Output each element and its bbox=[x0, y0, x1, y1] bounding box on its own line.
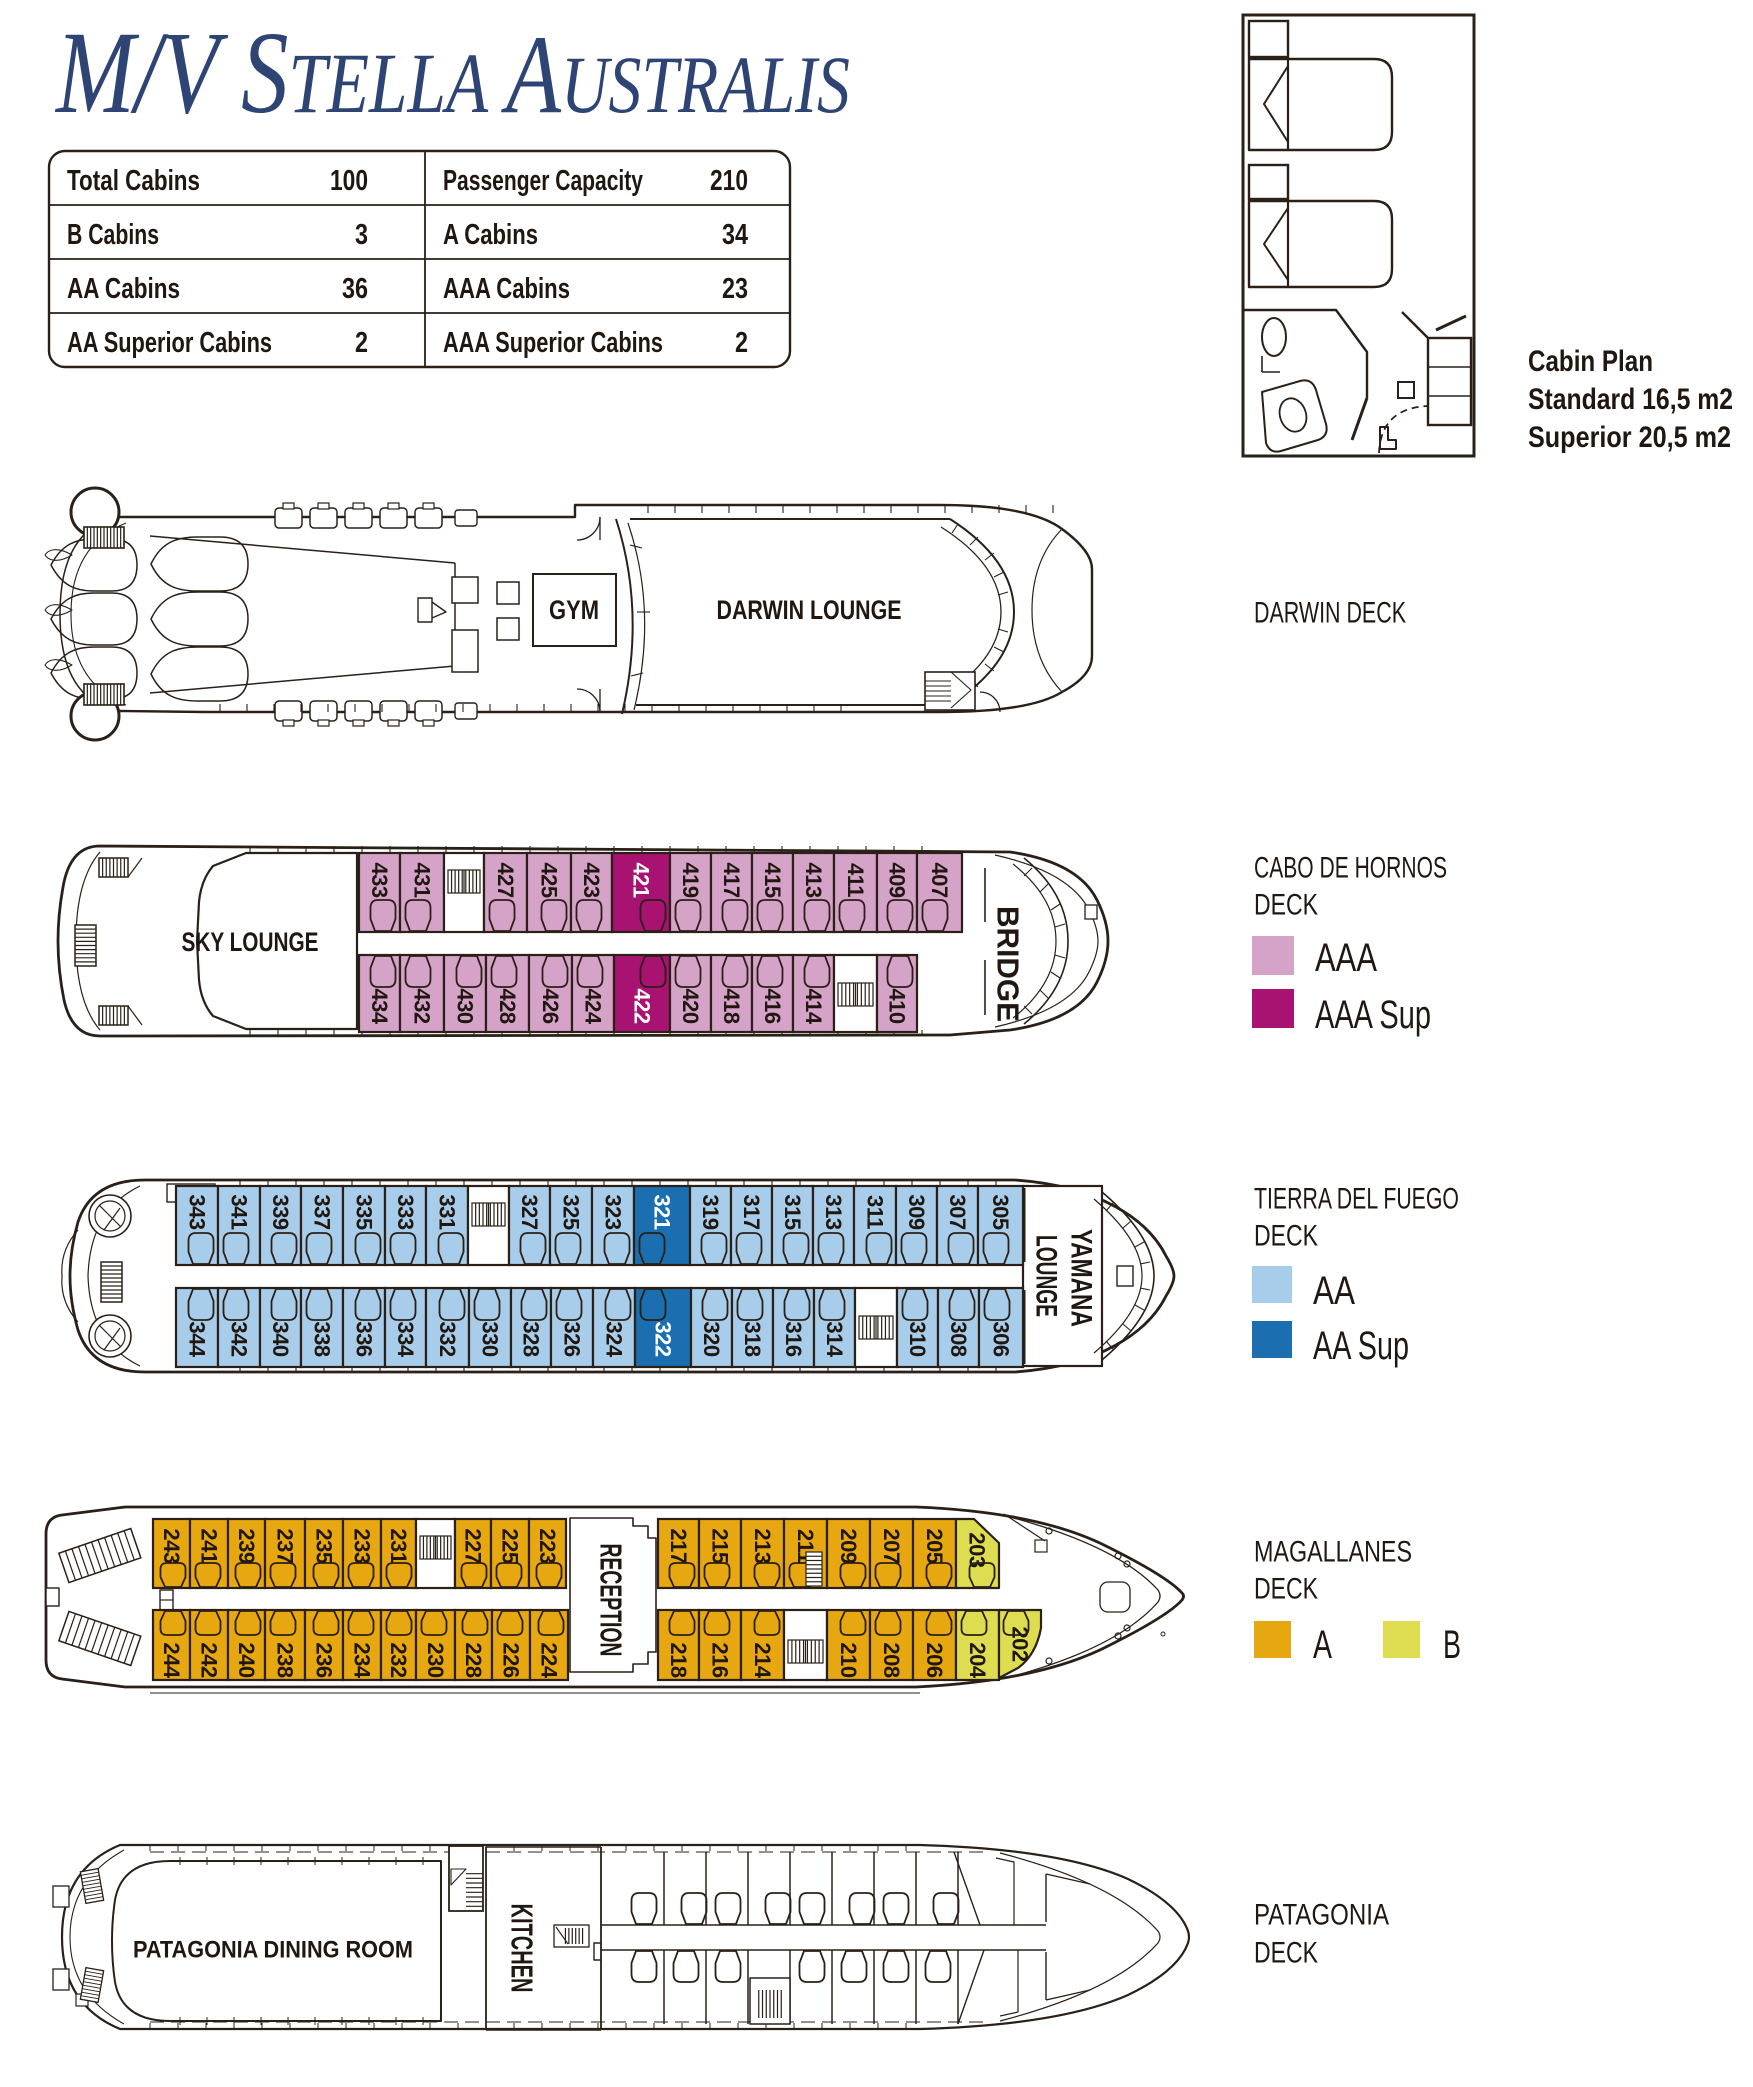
svg-text:AAA Superior Cabins: AAA Superior Cabins bbox=[443, 327, 663, 359]
svg-text:YAMANA: YAMANA bbox=[1065, 1229, 1098, 1327]
svg-text:431: 431 bbox=[410, 862, 435, 897]
svg-text:343: 343 bbox=[185, 1194, 210, 1229]
svg-text:Passenger Capacity: Passenger Capacity bbox=[443, 165, 643, 197]
svg-text:415: 415 bbox=[760, 862, 785, 897]
svg-text:36: 36 bbox=[342, 273, 368, 305]
svg-text:205: 205 bbox=[922, 1528, 947, 1563]
svg-text:DECK: DECK bbox=[1254, 1220, 1318, 1253]
svg-text:341: 341 bbox=[227, 1194, 252, 1229]
svg-text:AA Cabins: AA Cabins bbox=[67, 273, 180, 305]
svg-text:244: 244 bbox=[159, 1642, 184, 1678]
svg-text:PATAGONIA DINING ROOM: PATAGONIA DINING ROOM bbox=[133, 1937, 413, 1964]
svg-text:407: 407 bbox=[927, 862, 952, 897]
svg-text:B Cabins: B Cabins bbox=[67, 219, 159, 251]
svg-text:CABO DE HORNOS: CABO DE HORNOS bbox=[1254, 852, 1447, 885]
svg-text:240: 240 bbox=[234, 1642, 259, 1677]
svg-text:235: 235 bbox=[312, 1528, 337, 1563]
svg-text:319: 319 bbox=[698, 1194, 723, 1229]
svg-text:334: 334 bbox=[393, 1321, 418, 1357]
svg-text:210: 210 bbox=[836, 1642, 861, 1677]
svg-text:427: 427 bbox=[493, 862, 518, 897]
svg-text:236: 236 bbox=[312, 1642, 337, 1677]
svg-text:414: 414 bbox=[801, 988, 826, 1024]
svg-text:KITCHEN: KITCHEN bbox=[505, 1904, 540, 1993]
svg-text:226: 226 bbox=[499, 1642, 524, 1677]
svg-text:217: 217 bbox=[666, 1528, 691, 1563]
svg-text:425: 425 bbox=[537, 862, 562, 897]
svg-text:Superior 20,5 m2: Superior 20,5 m2 bbox=[1528, 421, 1731, 454]
svg-text:A Cabins: A Cabins bbox=[443, 219, 538, 251]
svg-text:422: 422 bbox=[630, 988, 655, 1023]
svg-text:AAA: AAA bbox=[1315, 936, 1377, 980]
svg-text:DARWIN LOUNGE: DARWIN LOUNGE bbox=[717, 595, 902, 625]
svg-text:234: 234 bbox=[350, 1642, 375, 1678]
svg-text:413: 413 bbox=[801, 862, 826, 897]
svg-text:B: B bbox=[1443, 1623, 1461, 1667]
svg-text:224: 224 bbox=[537, 1642, 562, 1678]
svg-text:AAA Sup: AAA Sup bbox=[1315, 993, 1431, 1037]
svg-text:328: 328 bbox=[519, 1321, 544, 1356]
svg-text:322: 322 bbox=[651, 1321, 676, 1356]
svg-text:TIERRA DEL FUEGO: TIERRA DEL FUEGO bbox=[1254, 1183, 1459, 1216]
svg-text:DECK: DECK bbox=[1254, 1573, 1318, 1606]
svg-text:230: 230 bbox=[423, 1642, 448, 1677]
svg-text:314: 314 bbox=[822, 1321, 847, 1357]
svg-text:218: 218 bbox=[666, 1642, 691, 1677]
svg-text:213: 213 bbox=[750, 1528, 775, 1563]
svg-text:333: 333 bbox=[393, 1194, 418, 1229]
svg-text:223: 223 bbox=[535, 1528, 560, 1563]
svg-text:307: 307 bbox=[945, 1194, 970, 1229]
svg-text:2: 2 bbox=[355, 327, 368, 359]
svg-text:432: 432 bbox=[410, 988, 435, 1023]
svg-text:409: 409 bbox=[885, 862, 910, 897]
svg-text:313: 313 bbox=[821, 1194, 846, 1229]
svg-text:433: 433 bbox=[367, 862, 392, 897]
svg-text:428: 428 bbox=[495, 988, 520, 1023]
svg-text:309: 309 bbox=[904, 1194, 929, 1229]
svg-text:327: 327 bbox=[517, 1194, 542, 1229]
svg-text:207: 207 bbox=[879, 1528, 904, 1563]
svg-text:323: 323 bbox=[601, 1194, 626, 1229]
svg-text:308: 308 bbox=[946, 1321, 971, 1356]
svg-text:340: 340 bbox=[268, 1321, 293, 1356]
svg-text:AAA Cabins: AAA Cabins bbox=[443, 273, 570, 305]
svg-text:215: 215 bbox=[708, 1528, 733, 1563]
svg-text:421: 421 bbox=[629, 862, 654, 897]
svg-text:204: 204 bbox=[965, 1642, 990, 1678]
svg-text:419: 419 bbox=[678, 862, 703, 897]
svg-text:216: 216 bbox=[708, 1642, 733, 1677]
svg-text:SKY LOUNGE: SKY LOUNGE bbox=[182, 927, 319, 957]
svg-text:332: 332 bbox=[435, 1321, 460, 1356]
svg-text:231: 231 bbox=[386, 1528, 411, 1563]
svg-text:RECEPTION: RECEPTION bbox=[594, 1544, 629, 1657]
svg-text:331: 331 bbox=[435, 1194, 460, 1229]
svg-text:426: 426 bbox=[538, 988, 563, 1023]
svg-text:GYM: GYM bbox=[549, 595, 599, 625]
svg-text:315: 315 bbox=[780, 1194, 805, 1229]
svg-text:233: 233 bbox=[350, 1528, 375, 1563]
svg-text:214: 214 bbox=[750, 1642, 775, 1678]
svg-text:424: 424 bbox=[581, 988, 606, 1024]
svg-text:342: 342 bbox=[227, 1321, 252, 1356]
svg-text:325: 325 bbox=[559, 1194, 584, 1229]
svg-text:BRIDGE: BRIDGE bbox=[991, 906, 1026, 1022]
svg-text:423: 423 bbox=[579, 862, 604, 897]
svg-text:243: 243 bbox=[159, 1528, 184, 1563]
svg-text:DARWIN DECK: DARWIN DECK bbox=[1254, 597, 1406, 630]
svg-text:411: 411 bbox=[843, 863, 868, 897]
svg-text:241: 241 bbox=[197, 1528, 222, 1563]
svg-text:410: 410 bbox=[885, 988, 910, 1023]
svg-text:Cabin Plan: Cabin Plan bbox=[1528, 345, 1653, 378]
svg-text:305: 305 bbox=[988, 1194, 1013, 1229]
svg-text:335: 335 bbox=[352, 1194, 377, 1229]
svg-text:DECK: DECK bbox=[1254, 1937, 1318, 1970]
svg-text:242: 242 bbox=[197, 1642, 222, 1677]
svg-text:310: 310 bbox=[905, 1321, 930, 1356]
svg-text:237: 237 bbox=[273, 1528, 298, 1563]
svg-text:338: 338 bbox=[310, 1321, 335, 1356]
svg-text:228: 228 bbox=[461, 1642, 486, 1677]
svg-text:Standard 16,5 m2: Standard 16,5 m2 bbox=[1528, 383, 1733, 416]
svg-text:336: 336 bbox=[352, 1321, 377, 1356]
svg-text:209: 209 bbox=[836, 1528, 861, 1563]
svg-text:210: 210 bbox=[710, 165, 748, 197]
svg-text:239: 239 bbox=[234, 1528, 259, 1563]
svg-text:232: 232 bbox=[386, 1642, 411, 1677]
svg-text:417: 417 bbox=[719, 862, 744, 897]
svg-text:324: 324 bbox=[602, 1321, 627, 1357]
svg-text:DECK: DECK bbox=[1254, 889, 1318, 922]
svg-text:321: 321 bbox=[650, 1194, 675, 1229]
svg-text:34: 34 bbox=[722, 219, 748, 251]
svg-text:AA Superior Cabins: AA Superior Cabins bbox=[67, 327, 272, 359]
svg-text:430: 430 bbox=[453, 988, 478, 1023]
svg-text:311: 311 bbox=[863, 1195, 888, 1229]
svg-text:306: 306 bbox=[989, 1321, 1014, 1356]
svg-text:Total Cabins: Total Cabins bbox=[67, 165, 200, 197]
svg-text:MAGALLANES: MAGALLANES bbox=[1254, 1536, 1412, 1569]
svg-text:206: 206 bbox=[922, 1642, 947, 1677]
svg-text:320: 320 bbox=[699, 1321, 724, 1356]
svg-text:416: 416 bbox=[760, 988, 785, 1023]
svg-text:3: 3 bbox=[355, 219, 368, 251]
svg-text:317: 317 bbox=[739, 1194, 764, 1229]
svg-text:434: 434 bbox=[367, 988, 392, 1024]
svg-text:339: 339 bbox=[268, 1194, 293, 1229]
svg-text:227: 227 bbox=[461, 1528, 486, 1563]
svg-text:LOUNGE: LOUNGE bbox=[1030, 1235, 1063, 1317]
svg-text:100: 100 bbox=[330, 165, 368, 197]
svg-text:337: 337 bbox=[310, 1194, 335, 1229]
svg-text:A: A bbox=[1313, 1623, 1332, 1667]
svg-text:23: 23 bbox=[722, 273, 748, 305]
svg-text:316: 316 bbox=[781, 1321, 806, 1356]
svg-text:420: 420 bbox=[678, 988, 703, 1023]
svg-text:238: 238 bbox=[273, 1642, 298, 1677]
svg-text:318: 318 bbox=[740, 1321, 765, 1356]
svg-text:344: 344 bbox=[185, 1321, 210, 1357]
svg-text:AA: AA bbox=[1313, 1269, 1355, 1313]
svg-text:PATAGONIA: PATAGONIA bbox=[1254, 1899, 1389, 1932]
svg-text:AA Sup: AA Sup bbox=[1313, 1324, 1409, 1368]
svg-text:330: 330 bbox=[478, 1321, 503, 1356]
svg-text:225: 225 bbox=[498, 1528, 523, 1563]
svg-text:208: 208 bbox=[879, 1642, 904, 1677]
svg-text:418: 418 bbox=[719, 988, 744, 1023]
svg-text:326: 326 bbox=[560, 1321, 585, 1356]
svg-text:2: 2 bbox=[735, 327, 748, 359]
